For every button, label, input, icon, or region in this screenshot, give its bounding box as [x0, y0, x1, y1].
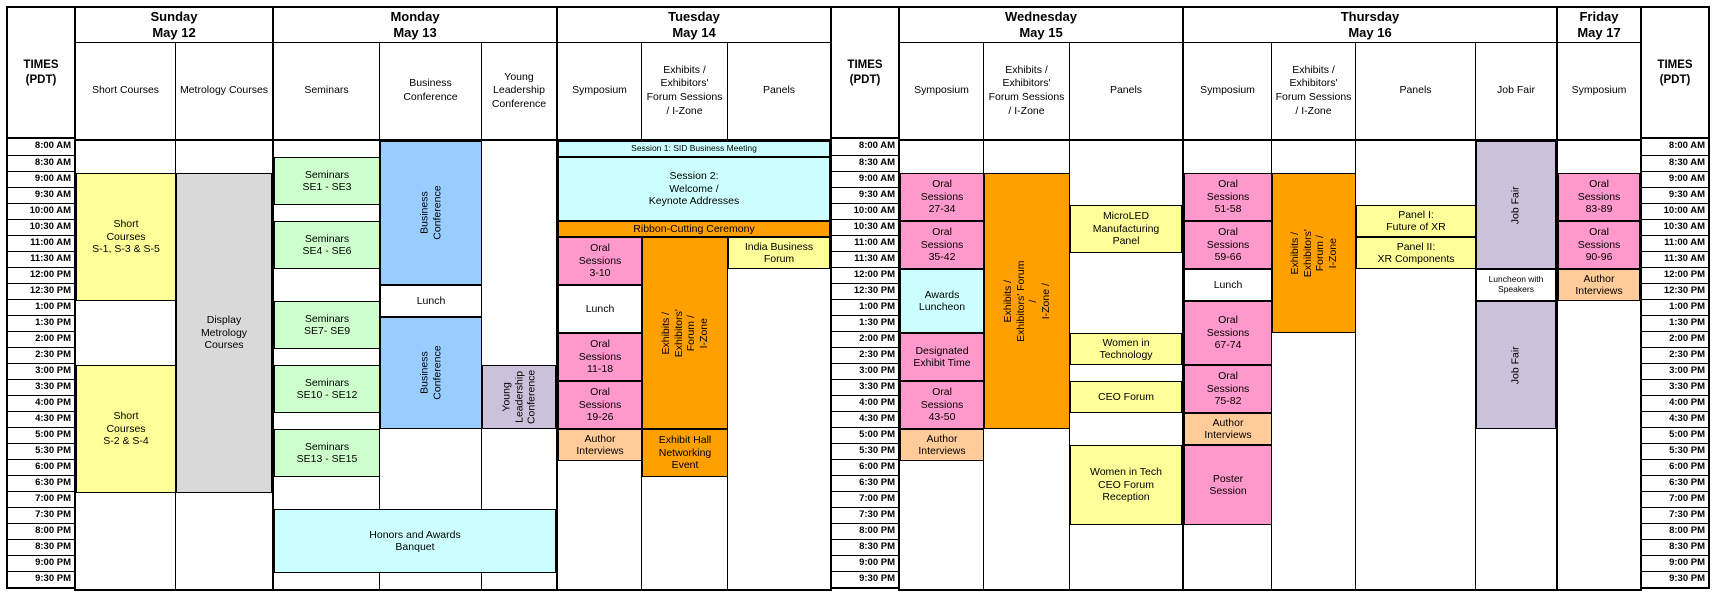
time-cell-right-9-00-pm: 9:00 PM: [1642, 555, 1708, 571]
time-cell-left-7-00-pm: 7:00 PM: [8, 491, 74, 507]
day-name-monday: Monday: [390, 9, 439, 25]
block-exhibit-hall-networking-event: Exhibit Hall Networking Event: [642, 429, 728, 477]
block-exhibits-forum-izone-thursday: Exhibits / Exhibitors' Forum / I-Zone: [1272, 173, 1356, 333]
time-cell-center-5-30-pm: 5:30 PM: [832, 443, 898, 459]
times-body-left: 8:00 AM8:30 AM9:00 AM9:30 AM10:00 AM10:3…: [8, 139, 74, 587]
block-seminars-se7-se9: Seminars SE7- SE9: [274, 301, 380, 349]
block-label-business-conference-afternoon: Business Conference: [418, 346, 443, 400]
block-seminars-se4-se6: Seminars SE4 - SE6: [274, 221, 380, 269]
block-label-business-conference-morning: Business Conference: [418, 186, 443, 240]
column-header-tuesday-panels: Panels: [728, 43, 830, 139]
time-cell-right-12-00-pm: 12:00 PM: [1642, 267, 1708, 283]
time-cell-left-3-30-pm: 3:30 PM: [8, 379, 74, 395]
day-title-sunday: SundayMay 12: [76, 8, 272, 43]
time-cell-left-12-00-pm: 12:00 PM: [8, 267, 74, 283]
column-header-monday-young-leadership-conference: Young Leadership Conference: [482, 43, 556, 139]
time-cell-left-8-30-am: 8:30 AM: [8, 155, 74, 171]
day-grid-monday: Seminars SE1 - SE3Seminars SE4 - SE6Semi…: [274, 141, 556, 589]
block-women-in-tech-ceo-forum-reception: Women in Tech CEO Forum Reception: [1070, 445, 1182, 525]
time-cell-left-1-00-pm: 1:00 PM: [8, 299, 74, 315]
day-grid-thursday: Oral Sessions 51-58Oral Sessions 59-66Lu…: [1184, 141, 1556, 589]
time-cell-left-8-00-am: 8:00 AM: [8, 139, 74, 155]
block-label-oral-sessions-11-18: Oral Sessions 11-18: [579, 338, 622, 375]
column-header-wednesday-symposium: Symposium: [900, 43, 984, 139]
time-cell-right-9-30-pm: 9:30 PM: [1642, 571, 1708, 587]
time-cell-center-12-30-pm: 12:30 PM: [832, 283, 898, 299]
time-cell-center-5-00-pm: 5:00 PM: [832, 427, 898, 443]
time-cell-left-10-30-am: 10:30 AM: [8, 219, 74, 235]
time-cell-left-6-30-pm: 6:30 PM: [8, 475, 74, 491]
block-label-young-leadership-conference: Young Leadership Conference: [500, 370, 538, 424]
column-header-tuesday-exhibits-exhibitors-forum-sessions-i-zone: Exhibits / Exhibitors' Forum Sessions / …: [642, 43, 728, 139]
time-cell-right-11-00-am: 11:00 AM: [1642, 235, 1708, 251]
column-header-thursday-panels: Panels: [1356, 43, 1476, 139]
block-oral-sessions-19-26: Oral Sessions 19-26: [558, 381, 642, 429]
time-cell-center-9-30-pm: 9:30 PM: [832, 571, 898, 587]
time-cell-center-3-00-pm: 3:00 PM: [832, 363, 898, 379]
block-label-seminars-se4-se6: Seminars SE4 - SE6: [302, 233, 351, 258]
time-cell-left-9-30-pm: 9:30 PM: [8, 571, 74, 587]
time-cell-center-9-30-am: 9:30 AM: [832, 187, 898, 203]
block-label-oral-sessions-51-58: Oral Sessions 51-58: [1207, 178, 1250, 215]
block-author-interviews-tuesday: Author Interviews: [558, 429, 642, 461]
day-date-tuesday: May 14: [672, 25, 715, 41]
block-luncheon-with-speakers: Luncheon with Speakers: [1476, 269, 1556, 301]
time-cell-right-7-30-pm: 7:30 PM: [1642, 507, 1708, 523]
block-display-metrology-courses: Display Metrology Courses: [176, 173, 272, 493]
block-label-poster-session: Poster Session: [1209, 473, 1246, 498]
day-name-friday: Friday: [1579, 9, 1618, 25]
time-cell-center-11-00-am: 11:00 AM: [832, 235, 898, 251]
block-label-session-1-sid-business-meeting: Session 1: SID Business Meeting: [631, 144, 757, 154]
column-header-monday-seminars: Seminars: [274, 43, 380, 139]
time-cell-right-8-00-pm: 8:00 PM: [1642, 523, 1708, 539]
time-cell-left-12-30-pm: 12:30 PM: [8, 283, 74, 299]
times-header-left: TIMES (PDT): [8, 8, 74, 139]
block-author-interviews-friday: Author Interviews: [1558, 269, 1640, 301]
block-oral-sessions-11-18: Oral Sessions 11-18: [558, 333, 642, 381]
day-date-thursday: May 16: [1348, 25, 1391, 41]
block-label-oral-sessions-90-96: Oral Sessions 90-96: [1578, 226, 1621, 263]
time-cell-left-1-30-pm: 1:30 PM: [8, 315, 74, 331]
block-label-oral-sessions-35-42: Oral Sessions 35-42: [921, 226, 964, 263]
time-cell-right-10-30-am: 10:30 AM: [1642, 219, 1708, 235]
column-header-friday-symposium: Symposium: [1558, 43, 1640, 139]
time-cell-right-3-00-pm: 3:00 PM: [1642, 363, 1708, 379]
block-oral-sessions-75-82: Oral Sessions 75-82: [1184, 365, 1272, 413]
column-header-tuesday-symposium: Symposium: [558, 43, 642, 139]
block-short-courses-s1-s3-s5: Short Courses S-1, S-3 & S-5: [76, 173, 176, 301]
times-column-left: TIMES (PDT)8:00 AM8:30 AM9:00 AM9:30 AM1…: [6, 6, 76, 589]
time-cell-left-5-30-pm: 5:30 PM: [8, 443, 74, 459]
block-label-awards-luncheon: Awards Luncheon: [919, 289, 965, 314]
time-cell-right-3-30-pm: 3:30 PM: [1642, 379, 1708, 395]
time-cell-center-8-00-pm: 8:00 PM: [832, 523, 898, 539]
time-cell-center-8-30-am: 8:30 AM: [832, 155, 898, 171]
time-cell-left-10-00-am: 10:00 AM: [8, 203, 74, 219]
day-title-tuesday: TuesdayMay 14: [558, 8, 830, 43]
time-cell-right-2-30-pm: 2:30 PM: [1642, 347, 1708, 363]
block-label-oral-sessions-75-82: Oral Sessions 75-82: [1207, 370, 1250, 407]
block-women-in-technology: Women in Technology: [1070, 333, 1182, 365]
block-panel-1-future-of-xr: Panel I: Future of XR: [1356, 205, 1476, 237]
block-label-short-courses-s1-s3-s5: Short Courses S-1, S-3 & S-5: [92, 218, 160, 255]
times-body-center: 8:00 AM8:30 AM9:00 AM9:30 AM10:00 AM10:3…: [832, 139, 898, 587]
block-label-oral-sessions-27-34: Oral Sessions 27-34: [921, 178, 964, 215]
block-lunch-monday: Lunch: [380, 285, 482, 317]
time-cell-right-4-00-pm: 4:00 PM: [1642, 395, 1708, 411]
time-cell-center-4-00-pm: 4:00 PM: [832, 395, 898, 411]
block-seminars-se1-se3: Seminars SE1 - SE3: [274, 157, 380, 205]
block-label-oral-sessions-59-66: Oral Sessions 59-66: [1207, 226, 1250, 263]
block-oral-sessions-3-10: Oral Sessions 3-10: [558, 237, 642, 285]
day-name-thursday: Thursday: [1341, 9, 1400, 25]
column-header-wednesday-exhibits-exhibitors-forum-sessions-i-zone: Exhibits / Exhibitors' Forum Sessions / …: [984, 43, 1070, 139]
block-poster-session: Poster Session: [1184, 445, 1272, 525]
time-cell-center-6-30-pm: 6:30 PM: [832, 475, 898, 491]
block-panel-2-xr-components: Panel II: XR Components: [1356, 237, 1476, 269]
block-oral-sessions-43-50: Oral Sessions 43-50: [900, 381, 984, 429]
day-grid-tuesday: Session 1: SID Business MeetingSession 2…: [558, 141, 830, 589]
day-name-wednesday: Wednesday: [1005, 9, 1077, 25]
time-cell-right-8-30-pm: 8:30 PM: [1642, 539, 1708, 555]
time-cell-right-4-30-pm: 4:30 PM: [1642, 411, 1708, 427]
day-title-thursday: ThursdayMay 16: [1184, 8, 1556, 43]
column-header-thursday-exhibits-exhibitors-forum-sessions-i-zone: Exhibits / Exhibitors' Forum Sessions / …: [1272, 43, 1356, 139]
day-date-monday: May 13: [393, 25, 436, 41]
block-label-oral-sessions-43-50: Oral Sessions 43-50: [921, 386, 964, 423]
day-title-monday: MondayMay 13: [274, 8, 556, 43]
day-title-friday: FridayMay 17: [1558, 8, 1640, 43]
block-label-india-business-forum: India Business Forum: [745, 241, 813, 266]
time-cell-left-4-00-pm: 4:00 PM: [8, 395, 74, 411]
day-date-wednesday: May 15: [1019, 25, 1062, 41]
time-cell-left-6-00-pm: 6:00 PM: [8, 459, 74, 475]
block-lunch-thursday: Lunch: [1184, 269, 1272, 301]
time-cell-right-10-00-am: 10:00 AM: [1642, 203, 1708, 219]
block-label-ribbon-cutting-ceremony: Ribbon-Cutting Ceremony: [633, 223, 754, 235]
time-cell-left-4-30-pm: 4:30 PM: [8, 411, 74, 427]
time-cell-left-8-00-pm: 8:00 PM: [8, 523, 74, 539]
block-label-display-metrology-courses: Display Metrology Courses: [201, 314, 247, 351]
column-header-thursday-job-fair: Job Fair: [1476, 43, 1556, 139]
time-cell-left-3-00-pm: 3:00 PM: [8, 363, 74, 379]
day-section-tuesday: TuesdayMay 14SymposiumExhibits / Exhibit…: [556, 6, 832, 591]
time-cell-right-6-00-pm: 6:00 PM: [1642, 459, 1708, 475]
column-headers-wednesday: SymposiumExhibits / Exhibitors' Forum Se…: [900, 43, 1182, 141]
time-cell-center-12-00-pm: 12:00 PM: [832, 267, 898, 283]
time-cell-right-9-00-am: 9:00 AM: [1642, 171, 1708, 187]
times-header-center: TIMES (PDT): [832, 8, 898, 139]
day-title-wednesday: WednesdayMay 15: [900, 8, 1182, 43]
block-exhibits-forum-izone-wednesday: Exhibits / Exhibitors' Forum / I-Zone /: [984, 173, 1070, 429]
times-column-center: TIMES (PDT)8:00 AM8:30 AM9:00 AM9:30 AM1…: [830, 6, 900, 589]
day-grid-sunday: Short Courses S-1, S-3 & S-5Display Metr…: [76, 141, 272, 589]
time-cell-center-8-30-pm: 8:30 PM: [832, 539, 898, 555]
block-author-interviews-thursday: Author Interviews: [1184, 413, 1272, 445]
time-cell-center-4-30-pm: 4:30 PM: [832, 411, 898, 427]
block-label-author-interviews-tuesday: Author Interviews: [576, 433, 623, 458]
time-cell-left-11-00-am: 11:00 AM: [8, 235, 74, 251]
block-label-oral-sessions-19-26: Oral Sessions 19-26: [579, 386, 622, 423]
times-column-right: TIMES (PDT)8:00 AM8:30 AM9:00 AM9:30 AM1…: [1640, 6, 1710, 589]
block-label-microled-manufacturing-panel: MicroLED Manufacturing Panel: [1093, 210, 1160, 247]
block-young-leadership-conference: Young Leadership Conference: [482, 365, 556, 429]
block-label-panel-1-future-of-xr: Panel I: Future of XR: [1386, 209, 1446, 234]
time-cell-right-8-00-am: 8:00 AM: [1642, 139, 1708, 155]
block-label-oral-sessions-83-89: Oral Sessions 83-89: [1578, 178, 1621, 215]
column-header-thursday-symposium: Symposium: [1184, 43, 1272, 139]
time-cell-center-2-30-pm: 2:30 PM: [832, 347, 898, 363]
time-cell-right-9-30-am: 9:30 AM: [1642, 187, 1708, 203]
block-microled-manufacturing-panel: MicroLED Manufacturing Panel: [1070, 205, 1182, 253]
time-cell-center-8-00-am: 8:00 AM: [832, 139, 898, 155]
block-lunch-tuesday: Lunch: [558, 285, 642, 333]
time-cell-left-9-00-am: 9:00 AM: [8, 171, 74, 187]
block-business-conference-afternoon: Business Conference: [380, 317, 482, 429]
time-cell-right-5-30-pm: 5:30 PM: [1642, 443, 1708, 459]
block-business-conference-morning: Business Conference: [380, 141, 482, 285]
time-cell-center-9-00-am: 9:00 AM: [832, 171, 898, 187]
time-cell-left-8-30-pm: 8:30 PM: [8, 539, 74, 555]
block-label-panel-2-xr-components: Panel II: XR Components: [1377, 241, 1454, 266]
block-label-author-interviews-thursday: Author Interviews: [1204, 417, 1251, 442]
time-cell-center-2-00-pm: 2:00 PM: [832, 331, 898, 347]
block-label-session-2-welcome-keynotes: Session 2: Welcome / Keynote Addresses: [649, 170, 739, 207]
block-label-lunch-thursday: Lunch: [1214, 279, 1243, 291]
block-oral-sessions-83-89: Oral Sessions 83-89: [1558, 173, 1640, 221]
time-cell-left-9-30-am: 9:30 AM: [8, 187, 74, 203]
time-cell-center-10-30-am: 10:30 AM: [832, 219, 898, 235]
day-section-thursday: ThursdayMay 16SymposiumExhibits / Exhibi…: [1182, 6, 1558, 591]
block-seminars-se10-se12: Seminars SE10 - SE12: [274, 365, 380, 413]
day-section-sunday: SundayMay 12Short CoursesMetrology Cours…: [74, 6, 274, 591]
block-label-exhibits-forum-izone-wednesday: Exhibits / Exhibitors' Forum / I-Zone /: [1002, 260, 1052, 342]
block-label-lunch-tuesday: Lunch: [586, 303, 615, 315]
day-date-friday: May 17: [1577, 25, 1620, 41]
block-label-short-courses-s2-s4: Short Courses S-2 & S-4: [103, 410, 149, 447]
block-session-1-sid-business-meeting: Session 1: SID Business Meeting: [558, 141, 830, 157]
time-cell-center-11-30-am: 11:30 AM: [832, 251, 898, 267]
block-label-designated-exhibit-time: Designated Exhibit Time: [913, 345, 970, 370]
column-headers-sunday: Short CoursesMetrology Courses: [76, 43, 272, 141]
time-cell-right-1-30-pm: 1:30 PM: [1642, 315, 1708, 331]
time-cell-left-7-30-pm: 7:30 PM: [8, 507, 74, 523]
block-label-honors-awards-banquet: Honors and Awards Banquet: [369, 529, 460, 554]
time-cell-left-2-00-pm: 2:00 PM: [8, 331, 74, 347]
block-label-oral-sessions-67-74: Oral Sessions 67-74: [1207, 314, 1250, 351]
block-label-luncheon-with-speakers: Luncheon with Speakers: [1489, 275, 1544, 295]
time-cell-right-1-00-pm: 1:00 PM: [1642, 299, 1708, 315]
day-section-friday: FridayMay 17SymposiumOral Sessions 83-89…: [1556, 6, 1642, 591]
times-header-right: TIMES (PDT): [1642, 8, 1708, 139]
block-oral-sessions-27-34: Oral Sessions 27-34: [900, 173, 984, 221]
block-label-seminars-se10-se12: Seminars SE10 - SE12: [297, 377, 358, 402]
block-label-seminars-se1-se3: Seminars SE1 - SE3: [302, 169, 351, 194]
conference-week-schedule: TIMES (PDT)8:00 AM8:30 AM9:00 AM9:30 AM1…: [6, 6, 1712, 591]
block-session-2-welcome-keynotes: Session 2: Welcome / Keynote Addresses: [558, 157, 830, 221]
block-label-job-fair-morning: Job Fair: [1510, 186, 1523, 224]
block-label-author-interviews-wednesday: Author Interviews: [918, 433, 965, 458]
day-section-monday: MondayMay 13SeminarsBusiness ConferenceY…: [272, 6, 558, 591]
time-cell-right-8-30-am: 8:30 AM: [1642, 155, 1708, 171]
block-awards-luncheon: Awards Luncheon: [900, 269, 984, 333]
block-label-seminars-se7-se9: Seminars SE7- SE9: [304, 313, 350, 338]
column-headers-thursday: SymposiumExhibits / Exhibitors' Forum Se…: [1184, 43, 1556, 141]
column-header-sunday-metrology-courses: Metrology Courses: [176, 43, 272, 139]
block-oral-sessions-90-96: Oral Sessions 90-96: [1558, 221, 1640, 269]
block-oral-sessions-67-74: Oral Sessions 67-74: [1184, 301, 1272, 365]
time-cell-center-10-00-am: 10:00 AM: [832, 203, 898, 219]
time-cell-center-1-30-pm: 1:30 PM: [832, 315, 898, 331]
day-grid-friday: Oral Sessions 83-89Oral Sessions 90-96Au…: [1558, 141, 1640, 589]
time-cell-right-6-30-pm: 6:30 PM: [1642, 475, 1708, 491]
time-cell-right-5-00-pm: 5:00 PM: [1642, 427, 1708, 443]
block-label-exhibits-forum-izone-thursday: Exhibits / Exhibitors' Forum / I-Zone: [1289, 213, 1339, 293]
time-cell-center-9-00-pm: 9:00 PM: [832, 555, 898, 571]
time-cell-left-5-00-pm: 5:00 PM: [8, 427, 74, 443]
column-headers-friday: Symposium: [1558, 43, 1640, 141]
block-label-oral-sessions-3-10: Oral Sessions 3-10: [579, 242, 622, 279]
block-job-fair-morning: Job Fair: [1476, 141, 1556, 269]
time-cell-right-11-30-am: 11:30 AM: [1642, 251, 1708, 267]
block-honors-awards-banquet: Honors and Awards Banquet: [274, 509, 556, 573]
day-name-sunday: Sunday: [151, 9, 198, 25]
block-label-exhibits-forum-izone-tuesday: Exhibits / Exhibitors' Forum / I-Zone: [660, 292, 710, 374]
column-header-sunday-short-courses: Short Courses: [76, 43, 176, 139]
time-cell-center-7-00-pm: 7:00 PM: [832, 491, 898, 507]
day-name-tuesday: Tuesday: [668, 9, 720, 25]
block-label-exhibit-hall-networking-event: Exhibit Hall Networking Event: [659, 434, 712, 471]
time-cell-center-3-30-pm: 3:30 PM: [832, 379, 898, 395]
block-seminars-se13-se15: Seminars SE13 - SE15: [274, 429, 380, 477]
block-india-business-forum: India Business Forum: [728, 237, 830, 269]
time-cell-left-9-00-pm: 9:00 PM: [8, 555, 74, 571]
block-oral-sessions-59-66: Oral Sessions 59-66: [1184, 221, 1272, 269]
block-label-women-in-tech-ceo-forum-reception: Women in Tech CEO Forum Reception: [1090, 466, 1162, 503]
block-exhibits-forum-izone-tuesday: Exhibits / Exhibitors' Forum / I-Zone: [642, 237, 728, 429]
time-cell-right-7-00-pm: 7:00 PM: [1642, 491, 1708, 507]
column-header-wednesday-panels: Panels: [1070, 43, 1182, 139]
block-label-seminars-se13-se15: Seminars SE13 - SE15: [297, 441, 358, 466]
day-section-wednesday: WednesdayMay 15SymposiumExhibits / Exhib…: [898, 6, 1184, 591]
block-label-women-in-technology: Women in Technology: [1099, 337, 1152, 362]
block-label-author-interviews-friday: Author Interviews: [1575, 273, 1622, 298]
time-cell-center-7-30-pm: 7:30 PM: [832, 507, 898, 523]
times-body-right: 8:00 AM8:30 AM9:00 AM9:30 AM10:00 AM10:3…: [1642, 139, 1708, 587]
time-cell-right-2-00-pm: 2:00 PM: [1642, 331, 1708, 347]
time-cell-right-12-30-pm: 12:30 PM: [1642, 283, 1708, 299]
block-ribbon-cutting-ceremony: Ribbon-Cutting Ceremony: [558, 221, 830, 237]
time-cell-left-2-30-pm: 2:30 PM: [8, 347, 74, 363]
block-label-ceo-forum: CEO Forum: [1098, 391, 1154, 403]
block-designated-exhibit-time: Designated Exhibit Time: [900, 333, 984, 381]
block-short-courses-s2-s4: Short Courses S-2 & S-4: [76, 365, 176, 493]
time-cell-center-6-00-pm: 6:00 PM: [832, 459, 898, 475]
block-job-fair-afternoon: Job Fair: [1476, 301, 1556, 429]
block-oral-sessions-51-58: Oral Sessions 51-58: [1184, 173, 1272, 221]
column-headers-tuesday: SymposiumExhibits / Exhibitors' Forum Se…: [558, 43, 830, 141]
block-ceo-forum: CEO Forum: [1070, 381, 1182, 413]
block-label-job-fair-afternoon: Job Fair: [1510, 346, 1523, 384]
block-oral-sessions-35-42: Oral Sessions 35-42: [900, 221, 984, 269]
column-headers-monday: SeminarsBusiness ConferenceYoung Leaders…: [274, 43, 556, 141]
block-label-lunch-monday: Lunch: [417, 295, 446, 307]
day-grid-wednesday: Oral Sessions 27-34Oral Sessions 35-42Aw…: [900, 141, 1182, 589]
column-header-monday-business-conference: Business Conference: [380, 43, 482, 139]
day-date-sunday: May 12: [152, 25, 195, 41]
block-author-interviews-wednesday: Author Interviews: [900, 429, 984, 461]
time-cell-center-1-00-pm: 1:00 PM: [832, 299, 898, 315]
time-cell-left-11-30-am: 11:30 AM: [8, 251, 74, 267]
